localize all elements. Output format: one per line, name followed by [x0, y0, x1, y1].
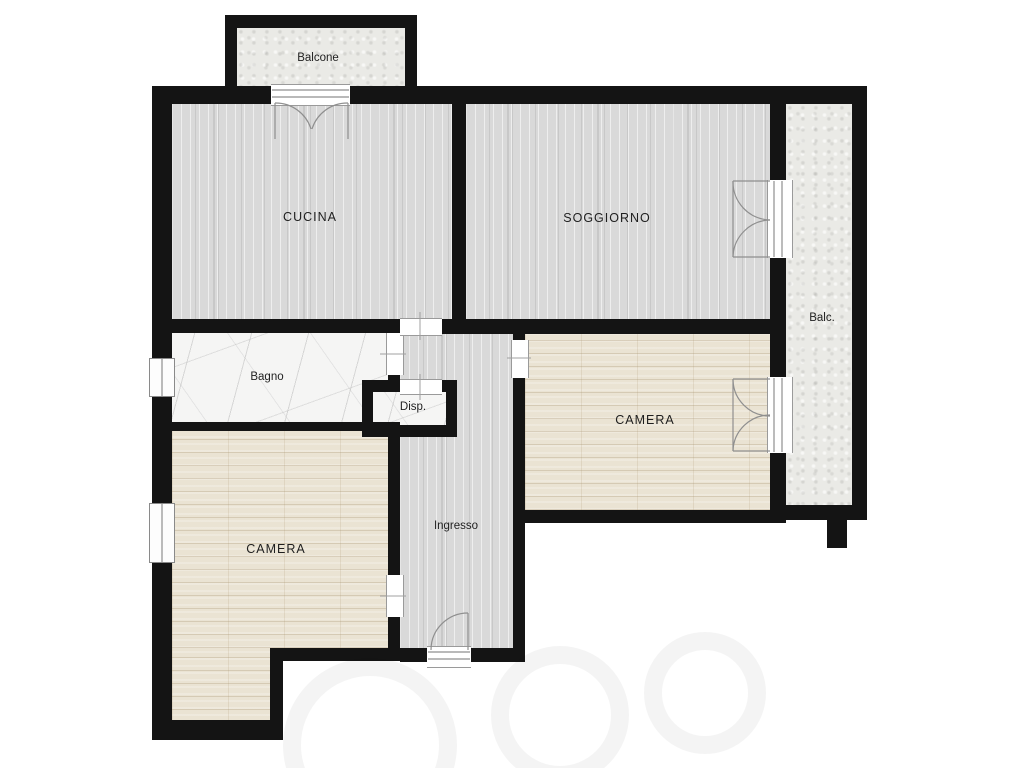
floor-plan: Balcone CUCINA SOGGIORNO Balc. Bagno Dis…	[0, 0, 1024, 768]
wall-balcone-right	[405, 15, 417, 88]
wall-midband-left	[152, 319, 400, 333]
watermark-shape	[653, 641, 757, 745]
wall-balcone-top	[225, 15, 417, 28]
opening-ingresso-top	[400, 318, 442, 336]
room-label-balc: Balc.	[809, 312, 835, 324]
watermark-shape	[292, 667, 448, 768]
wall-balc-stub	[827, 520, 847, 548]
door-threshold-camera-balc	[767, 377, 793, 453]
wall-entry-bottom-b	[468, 648, 513, 662]
room-label-disp: Disp.	[400, 401, 426, 413]
window-camera-left	[149, 503, 175, 563]
wall-ingresso-right-a	[513, 333, 525, 340]
wall-camera-right-bottom	[513, 510, 786, 523]
wall-balc-sep-a	[770, 104, 786, 180]
room-label-camera-right: CAMERA	[615, 413, 674, 427]
wall-left-mid	[152, 397, 172, 503]
window-bagno	[149, 358, 175, 397]
door-threshold-bagno	[386, 333, 404, 375]
door-threshold-entry	[427, 646, 471, 668]
wall-left-lower	[152, 563, 172, 740]
wall-cucina-soggiorno-divider	[452, 104, 466, 320]
watermark-shape	[500, 655, 620, 768]
room-label-balcone: Balcone	[297, 52, 339, 64]
wall-left-upper	[152, 86, 172, 358]
room-floor-camera-left	[172, 431, 388, 648]
wall-bottom-left	[152, 720, 283, 740]
door-threshold-balcone	[271, 84, 350, 106]
wall-ingresso-left-a	[388, 431, 400, 575]
wall-midband-right	[442, 319, 786, 334]
wall-top	[152, 86, 867, 104]
wall-balc-sep-b	[770, 258, 786, 377]
room-label-camera-left: CAMERA	[246, 542, 305, 556]
door-threshold-disp	[400, 379, 442, 395]
room-label-cucina: CUCINA	[283, 210, 337, 224]
wall-bagno-right-a	[388, 319, 400, 333]
wall-disp-top-a	[362, 380, 400, 392]
wall-balc-sep-c	[770, 453, 786, 510]
door-threshold-camera-right	[511, 340, 529, 378]
room-label-soggiorno: SOGGIORNO	[563, 211, 650, 225]
room-label-ingresso: Ingresso	[434, 520, 478, 532]
room-floor-camera-left-ext	[172, 648, 270, 723]
door-threshold-soggiorno-balc	[767, 180, 793, 258]
room-label-bagno: Bagno	[250, 371, 283, 383]
door-threshold-camera-left	[386, 575, 404, 617]
wall-ingresso-left-b	[388, 617, 400, 650]
wall-balc-bottom	[786, 505, 867, 520]
wall-balc-right	[852, 86, 867, 520]
wall-step-horizontal	[270, 648, 400, 661]
wall-step-vertical	[270, 648, 283, 740]
wall-balcone-left	[225, 15, 237, 88]
wall-disp-bottom	[362, 425, 457, 437]
wall-entry-bottom-a	[400, 648, 430, 662]
room-floor-balc	[786, 104, 852, 505]
